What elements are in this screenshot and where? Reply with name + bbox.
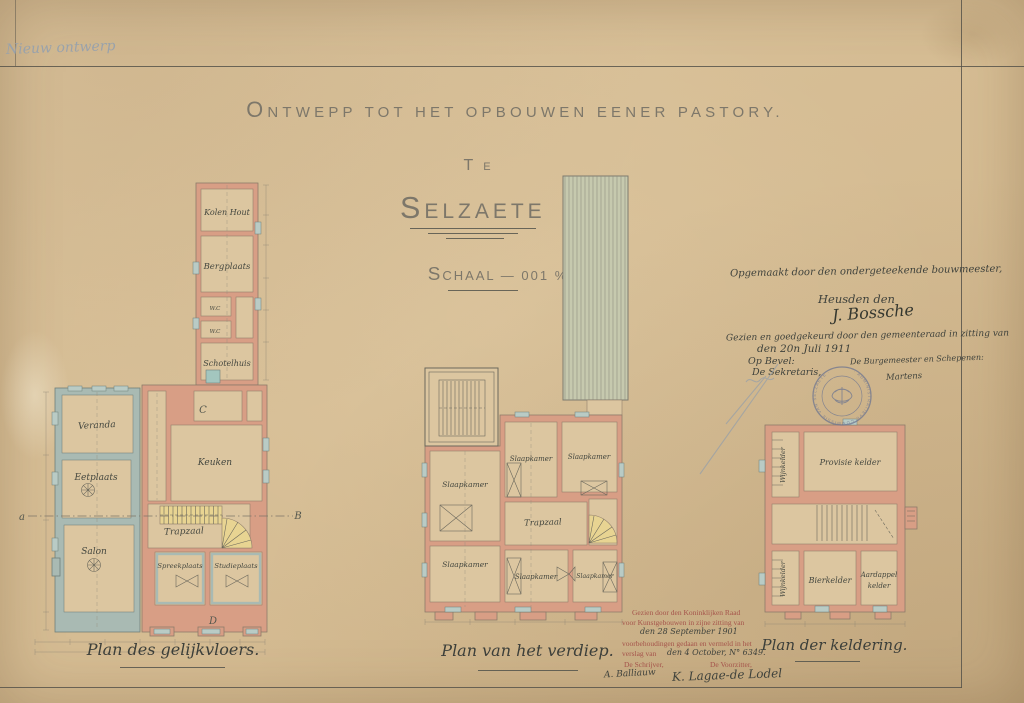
- room-label-wc: W.C: [210, 329, 221, 335]
- mayor-signature: Martens: [886, 371, 923, 383]
- room-label-trapzaal: Trapzaal: [164, 526, 204, 537]
- room-label-bergplaats: Bergplaats: [203, 262, 251, 272]
- stamp-line3: voorbehoudingen gedaan en vermeld in het: [622, 639, 752, 648]
- stamp-president-signature: K. Lagae-de Lodel: [672, 666, 783, 684]
- room-label-studieplaats: Studieplaats: [214, 562, 258, 570]
- room-label-slaapkamer: Slaapkamer: [576, 573, 615, 580]
- room-label-eetplaats: Eetplaats: [73, 473, 118, 483]
- room-label-keuken: Keuken: [197, 458, 232, 468]
- border-right-line: [961, 0, 962, 688]
- caption-floor-plan: Plan van het verdiep.: [440, 641, 615, 660]
- stamp-line1: Gezien door den Koninklijken Raad: [632, 608, 740, 617]
- room-label-veranda: Veranda: [78, 420, 116, 432]
- room-label-slaapkamer: Slaapkamer: [442, 560, 488, 569]
- caption-floor-underline: [478, 670, 578, 671]
- caption-ground-underline: [120, 667, 225, 668]
- stamp-handwritten-date1: den 28 September 1901: [640, 627, 738, 636]
- first-floor-plan: Slaapkamer Slaapkamer Slaapkamer Trapzaa…: [415, 163, 635, 633]
- room-label-slaapkamer: Slaapkamer: [568, 453, 611, 461]
- caption-ground-plan: Plan des gelijkvloers.: [78, 640, 268, 659]
- room-label-wc: W.C: [210, 306, 221, 312]
- section-marker-a: a: [19, 512, 25, 523]
- pencil-note: Nieuw ontwerp: [6, 38, 116, 58]
- municipal-seal: · ADMINISTRATIEVE COMMISSIE VAN SELZAETE…: [802, 356, 882, 436]
- council-approval-line: Gezien en goedgekeurd door den gemeenter…: [726, 329, 1009, 344]
- stamp-line4: verslag van: [622, 649, 656, 658]
- stamp-secretary-signature: A. Balliauw: [604, 668, 656, 681]
- seal-crest: [832, 387, 852, 405]
- room-label-aardappelkelder: Aardappel: [860, 571, 898, 579]
- room-label-wijnkelder: Wijnkelder: [779, 560, 787, 597]
- ground-floor-plan: Kolen Hout Bergplaats W.C W.C Schotelhui…: [10, 170, 320, 670]
- paper-stain: [920, 0, 1024, 70]
- room-label-slaapkamer: Slaapkamer: [515, 573, 558, 581]
- stamp-line2: voor Kunstgebouwen in zijne zitting van: [622, 618, 744, 627]
- room-label-salon: Salon: [81, 547, 107, 557]
- room-label-kolen-hout: Kolen Hout: [203, 208, 251, 217]
- room-label-slaapkamer: Slaapkamer: [442, 480, 488, 489]
- room-label-bierkelder: Bierkelder: [808, 576, 853, 585]
- room-label-slaapkamer: Slaapkamer: [510, 455, 553, 463]
- room-label-provisiekelder: Provisie kelder: [819, 458, 882, 467]
- pencil-marks: [686, 350, 806, 480]
- room-label-schotelhuis: Schotelhuis: [203, 359, 250, 368]
- stamp-handwritten-date2: den 4 October, N° 6349.: [667, 648, 766, 657]
- roof-plan: [563, 176, 628, 415]
- marker-c: C: [199, 405, 207, 416]
- room-label-spreekplaats: Spreekplaats: [157, 562, 203, 570]
- room-label-trapzaal: Trapzaal: [524, 517, 562, 528]
- section-marker-b: B: [293, 511, 301, 522]
- drawing-sheet: Nieuw ontwerp ONTWEPP TOT HET OPBOUWEN E…: [0, 0, 1024, 703]
- border-top-line: [0, 66, 1024, 67]
- royal-commission-stamp: Gezien door den Koninklijken Raad voor K…: [612, 608, 827, 688]
- attic-stair-enclosure: [425, 368, 498, 446]
- marker-d: D: [208, 616, 217, 627]
- sheet-title: ONTWEPP TOT HET OPBOUWEN EENER PASTORY.: [245, 97, 785, 123]
- room-label-aardappelkelder: kelder: [868, 582, 891, 590]
